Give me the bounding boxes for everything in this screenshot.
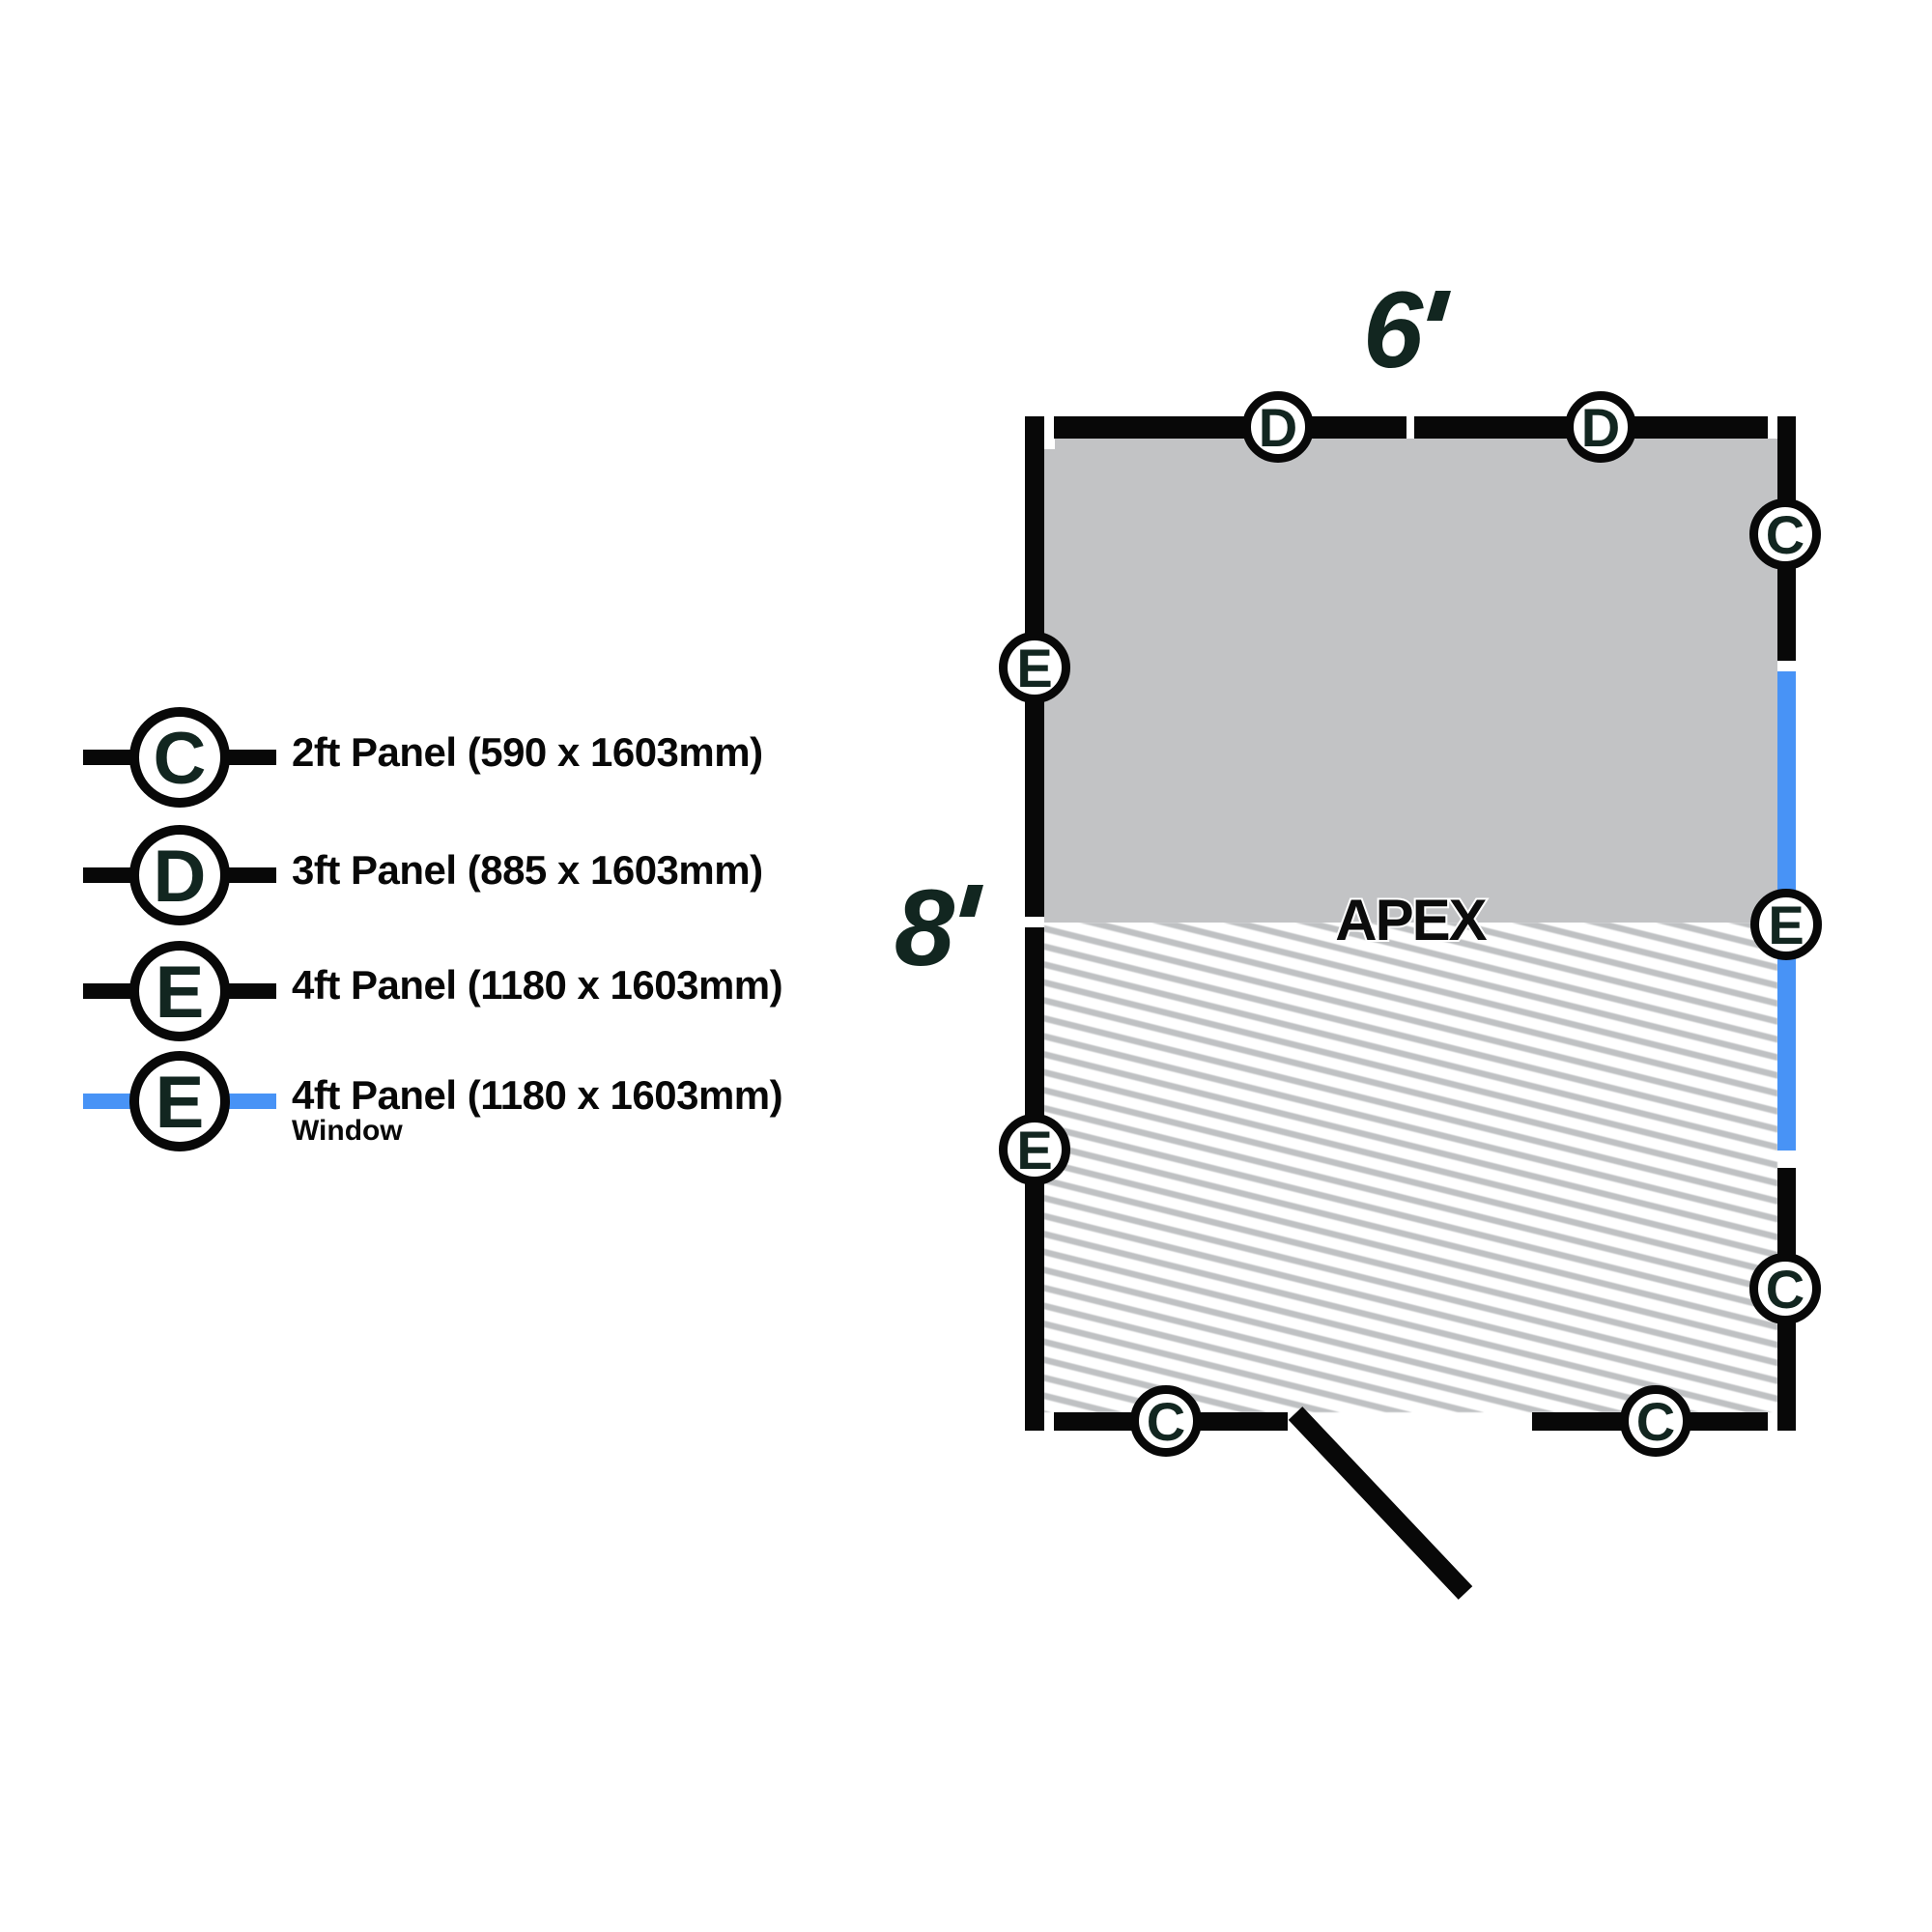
svg-text:APEX: APEX xyxy=(1335,888,1487,952)
svg-text:D: D xyxy=(1581,397,1620,458)
svg-text:8: 8 xyxy=(895,867,955,988)
svg-text:2ft Panel (590 x 1603mm): 2ft Panel (590 x 1603mm) xyxy=(292,729,763,775)
svg-text:E: E xyxy=(156,1062,205,1144)
svg-text:D: D xyxy=(154,836,207,918)
svg-text:C: C xyxy=(154,718,207,800)
svg-text:E: E xyxy=(1768,895,1804,955)
svg-text:E: E xyxy=(1016,1120,1052,1180)
svg-text:4ft Panel (1180 x 1603mm): 4ft Panel (1180 x 1603mm) xyxy=(292,962,782,1008)
svg-text:E: E xyxy=(1016,638,1052,698)
svg-text:E: E xyxy=(156,952,205,1034)
svg-text:4ft Panel (1180 x 1603mm): 4ft Panel (1180 x 1603mm) xyxy=(292,1072,782,1118)
svg-text:6: 6 xyxy=(1363,270,1424,390)
svg-text:C: C xyxy=(1766,504,1804,565)
svg-text:3ft Panel (885 x 1603mm): 3ft Panel (885 x 1603mm) xyxy=(292,847,763,893)
svg-text:Window: Window xyxy=(292,1115,403,1147)
svg-text:C: C xyxy=(1766,1259,1804,1320)
svg-text:C: C xyxy=(1636,1391,1675,1452)
svg-text:D: D xyxy=(1259,397,1297,458)
svg-text:C: C xyxy=(1147,1391,1185,1452)
